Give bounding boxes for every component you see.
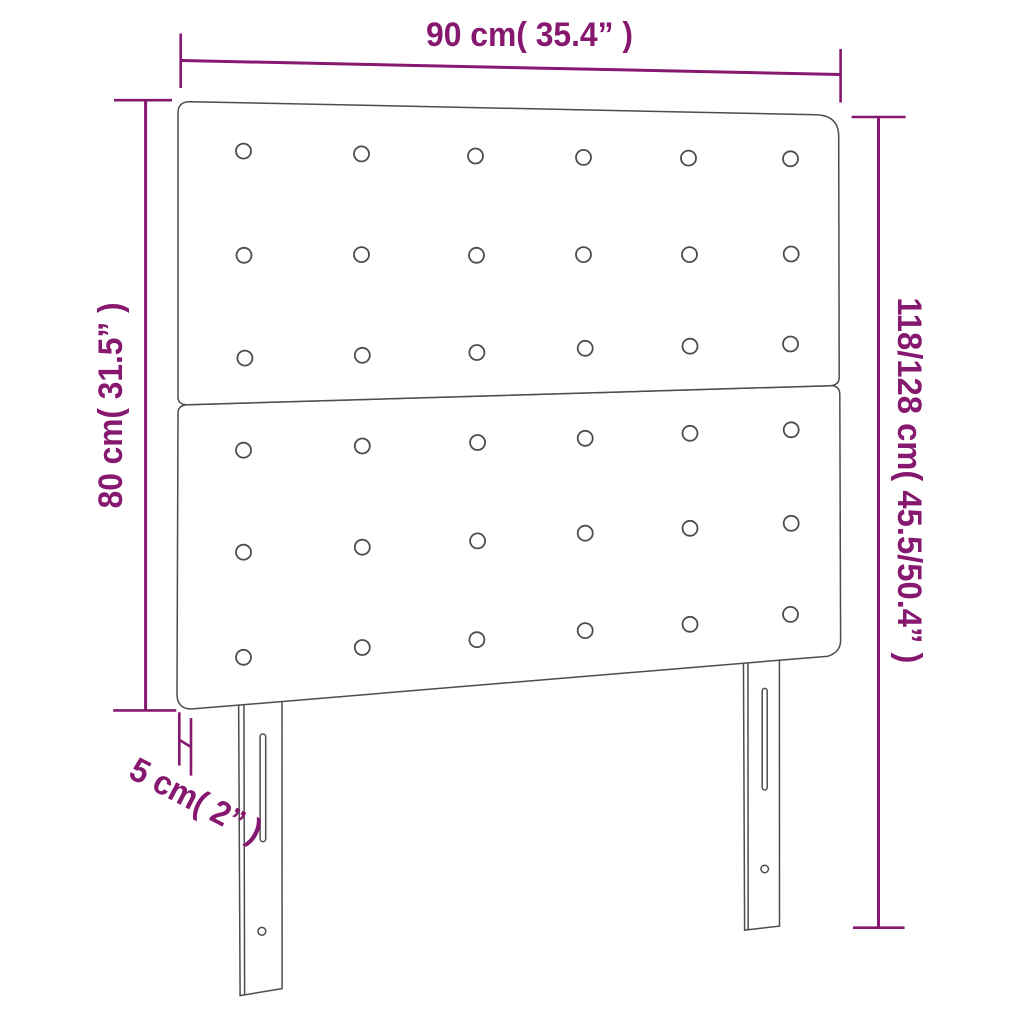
svg-text:80 cm( 31.5” ): 80 cm( 31.5” ) [92,302,130,508]
svg-text:118/128 cm( 45.5/50.4” ): 118/128 cm( 45.5/50.4” ) [890,297,928,663]
svg-text:90 cm( 35.4” ): 90 cm( 35.4” ) [426,16,633,54]
